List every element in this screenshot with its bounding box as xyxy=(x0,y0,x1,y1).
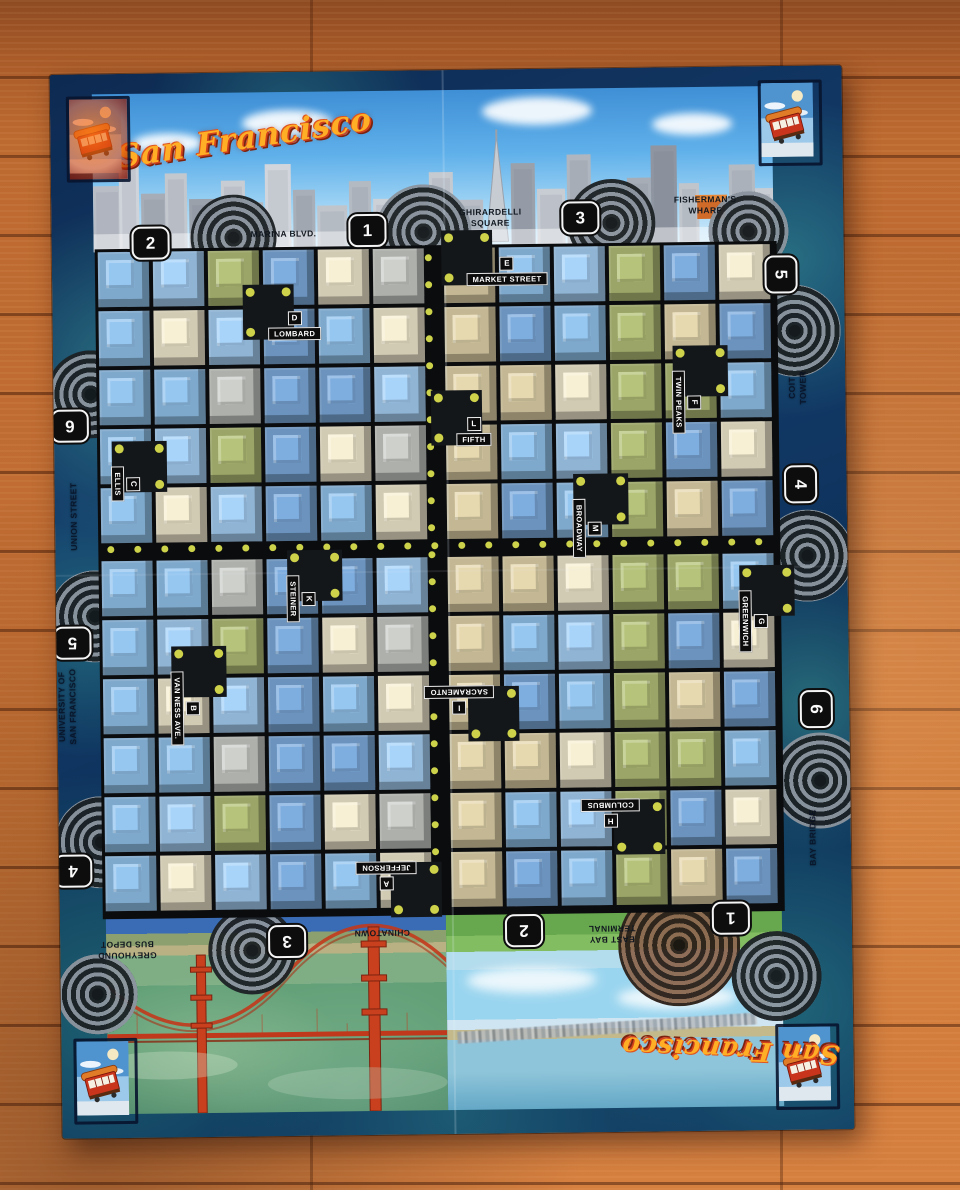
stop-name-label: TWIN PEAKS xyxy=(672,371,686,434)
city-block xyxy=(209,368,261,424)
building-shade xyxy=(211,559,263,615)
building-shade xyxy=(98,252,150,308)
stop-corner-dot xyxy=(174,649,183,658)
building-shade xyxy=(376,484,428,540)
building-shade xyxy=(322,617,374,673)
building-shade xyxy=(506,851,558,907)
stop-line-letter: D xyxy=(287,311,301,325)
stop-line-letter: I xyxy=(452,700,466,714)
city-block xyxy=(448,615,500,671)
building-shade xyxy=(209,368,261,424)
stop-corner-dot xyxy=(470,393,479,402)
stop-line-letter: G xyxy=(754,614,768,628)
destination-east-bay-terminal: EAST BAYTERMINAL xyxy=(588,923,635,945)
building-shade xyxy=(669,672,721,728)
building-shade xyxy=(377,616,429,672)
building-shade xyxy=(269,736,321,792)
city-block xyxy=(269,795,321,851)
building-shade xyxy=(99,370,151,426)
city-block xyxy=(556,423,608,479)
city-block xyxy=(505,733,557,789)
building-shade xyxy=(318,249,370,305)
street-dot xyxy=(425,308,432,315)
corner-cable-car-card xyxy=(66,96,131,183)
building-shade xyxy=(103,679,155,735)
stop-corner-dot xyxy=(434,433,443,442)
building-shade xyxy=(98,311,150,367)
city-block xyxy=(664,245,716,301)
city-block xyxy=(501,424,553,480)
city-block xyxy=(374,366,426,422)
building-shade xyxy=(268,677,320,733)
building-shade xyxy=(613,613,665,669)
stop-line-letter: C xyxy=(126,477,140,491)
street-dot xyxy=(215,545,222,552)
stop-corner-dot xyxy=(434,393,443,402)
building-shade xyxy=(450,792,502,848)
street-stop-van-ness-ave-: BVAN NESS AVE. xyxy=(170,671,200,745)
stop-corner-dot xyxy=(155,444,164,453)
stop-corner-dot xyxy=(115,444,124,453)
street-dot xyxy=(755,538,762,545)
city-block xyxy=(726,848,778,904)
stop-corner-dot xyxy=(246,288,255,297)
city-block xyxy=(264,368,316,424)
city-block xyxy=(558,614,610,670)
street-dot xyxy=(350,543,357,550)
destination-marina-blvd-: MARINA BLVD. xyxy=(251,228,317,239)
building-shade xyxy=(267,618,319,674)
stop-corner-dot xyxy=(471,729,480,738)
city-block xyxy=(554,246,606,302)
station-badge-2: 2 xyxy=(505,914,543,947)
city-block xyxy=(214,795,266,851)
building-shade xyxy=(614,672,666,728)
city-block xyxy=(505,792,557,848)
building-shade xyxy=(722,480,774,536)
city-block xyxy=(376,484,428,540)
stop-name-label: SACRAMENTO xyxy=(424,685,494,699)
building-shade xyxy=(505,792,557,848)
city-block xyxy=(614,672,666,728)
city-block xyxy=(377,616,429,672)
stop-line-letter: H xyxy=(604,814,618,828)
building-shade xyxy=(101,561,153,617)
destination-coit-tower: COITTOWER xyxy=(787,371,809,405)
building-shade xyxy=(373,307,425,363)
street-dot xyxy=(404,542,411,549)
building-shade xyxy=(160,855,212,911)
stop-line-letter: F xyxy=(687,395,701,409)
building-shade xyxy=(265,427,317,483)
building-shade xyxy=(319,367,371,423)
building-shade xyxy=(560,732,612,788)
station-badge-1: 1 xyxy=(348,214,386,247)
cable-car-illustration xyxy=(761,83,814,158)
stop-corner-dot xyxy=(290,553,299,562)
building-shade xyxy=(447,483,499,539)
building-shade xyxy=(555,364,607,420)
city-block xyxy=(502,483,554,539)
street-dot xyxy=(430,659,437,666)
stop-corner-dot xyxy=(215,685,224,694)
destination-university-of-san-francisco: UNIVERSITY OFSAN FRANCISCO xyxy=(56,669,78,745)
city-block xyxy=(320,426,372,482)
stop-name-label: BROADWAY xyxy=(572,499,586,558)
building-shade xyxy=(556,423,608,479)
building-shade xyxy=(616,849,668,905)
city-block xyxy=(615,731,667,787)
building-shade xyxy=(210,427,262,483)
building-shade xyxy=(156,487,208,543)
building-shade xyxy=(324,794,376,850)
building-shade xyxy=(376,557,428,613)
city-block xyxy=(269,736,321,792)
city-block xyxy=(506,851,558,907)
stop-corner-dot xyxy=(507,729,516,738)
street-dot xyxy=(161,545,168,552)
stop-name-label: LOMBARD xyxy=(268,327,321,341)
building-shade xyxy=(214,736,266,792)
city-block xyxy=(159,737,211,793)
destination-ghirardelli-square: GHIRARDELLISQUARE xyxy=(459,206,522,228)
building-shade xyxy=(105,856,157,912)
station-badge-6: 6 xyxy=(800,690,833,728)
building-shade xyxy=(502,483,554,539)
city-block xyxy=(318,249,370,305)
city-block xyxy=(319,367,371,423)
street-dot xyxy=(512,541,519,548)
station-badge-1: 1 xyxy=(712,901,750,934)
building-shade xyxy=(159,737,211,793)
stop-corner-dot xyxy=(716,384,725,393)
city-block xyxy=(211,486,263,542)
city-block xyxy=(322,617,374,673)
street-dot xyxy=(428,551,435,558)
destination-bay-bridge: BAY BRIDGE xyxy=(807,809,818,866)
building-shade xyxy=(612,554,664,610)
city-block xyxy=(98,311,150,367)
city-block xyxy=(379,734,431,790)
building-shade xyxy=(270,854,322,910)
cloud xyxy=(466,966,596,994)
san-francisco-game-board: San Francisco xyxy=(50,65,855,1139)
station-badge-5: 5 xyxy=(53,626,91,659)
station-badge-5: 5 xyxy=(764,255,797,293)
city-block xyxy=(156,487,208,543)
stop-line-letter: A xyxy=(379,876,393,890)
street-dot xyxy=(188,545,195,552)
building-shade xyxy=(558,614,610,670)
building-shade xyxy=(503,615,555,671)
building-shade xyxy=(318,308,370,364)
city-block xyxy=(105,856,157,912)
stop-corner-dot xyxy=(507,689,516,698)
city-block xyxy=(609,245,661,301)
stop-corner-dot xyxy=(617,512,626,521)
building-shade xyxy=(264,368,316,424)
stop-name-label: GREENWICH xyxy=(738,590,752,652)
city-block xyxy=(375,425,427,481)
street-dot xyxy=(425,254,432,261)
cable-car-turnaround-loop xyxy=(731,931,822,1022)
city-block xyxy=(265,427,317,483)
stop-name-label: FIFTH xyxy=(456,433,491,447)
corner-cable-car-card xyxy=(73,1038,138,1125)
city-block xyxy=(160,855,212,911)
building-shade xyxy=(554,305,606,361)
station-badge-3: 3 xyxy=(268,925,306,958)
city-block xyxy=(671,849,723,905)
destination-greyhound-bus-depot: GREYHOUNDBUS DEPOT xyxy=(98,939,157,961)
stop-line-letter: M xyxy=(588,521,602,535)
holographic-tint xyxy=(69,99,128,180)
building-shade xyxy=(610,363,662,419)
cloud xyxy=(482,96,592,125)
stop-corner-dot xyxy=(246,328,255,337)
city-block xyxy=(719,244,771,300)
city-block xyxy=(101,561,153,617)
stop-name-label: MARKET STREET xyxy=(467,272,548,286)
city-block xyxy=(611,422,663,478)
city-block xyxy=(211,559,263,615)
building-shade xyxy=(670,731,722,787)
building-shade xyxy=(448,615,500,671)
building-shade xyxy=(726,848,778,904)
city-block xyxy=(722,480,774,536)
city-block xyxy=(667,554,719,610)
city-block xyxy=(270,854,322,910)
stop-corner-dot xyxy=(653,802,662,811)
stop-corner-dot xyxy=(430,905,439,914)
street-stop-market-street: EMARKET STREET xyxy=(466,256,547,286)
building-shade xyxy=(505,733,557,789)
building-shade xyxy=(321,485,373,541)
street-dot xyxy=(485,542,492,549)
building-shade xyxy=(501,424,553,480)
city-block xyxy=(609,304,661,360)
city-block xyxy=(444,306,496,362)
station-badge-4: 4 xyxy=(54,854,92,887)
city-block xyxy=(670,731,722,787)
street-dot xyxy=(107,546,114,553)
city-block xyxy=(503,615,555,671)
stop-corner-dot xyxy=(444,233,453,242)
building-shade xyxy=(724,671,776,727)
street-dot xyxy=(429,632,436,639)
city-block xyxy=(610,363,662,419)
building-shade xyxy=(379,793,431,849)
stop-name-label: VAN NESS AVE. xyxy=(170,671,184,745)
building-shade xyxy=(320,426,372,482)
city-block xyxy=(99,370,151,426)
street-dot xyxy=(425,281,432,288)
city-block xyxy=(724,671,776,727)
city-block xyxy=(154,369,206,425)
building-shade xyxy=(609,245,661,301)
stop-line-letter: B xyxy=(186,701,200,715)
city-block xyxy=(321,485,373,541)
stop-name-label: ELLIS xyxy=(111,466,125,501)
street-stop-sacramento: ISACRAMENTO xyxy=(424,685,494,715)
stop-corner-dot xyxy=(617,843,626,852)
city-block xyxy=(500,365,552,421)
street-dot xyxy=(728,539,735,546)
street-dot xyxy=(701,539,708,546)
building-shade xyxy=(373,248,425,304)
building-shade xyxy=(104,797,156,853)
city-block xyxy=(450,733,502,789)
street-dot xyxy=(242,544,249,551)
building-shade xyxy=(721,421,773,477)
street-dot xyxy=(269,544,276,551)
stop-corner-dot xyxy=(214,649,223,658)
city-block xyxy=(613,613,665,669)
city-block xyxy=(215,854,267,910)
stop-corner-dot xyxy=(330,589,339,598)
city-block xyxy=(725,730,777,786)
street-dot xyxy=(431,542,438,549)
city-block xyxy=(725,789,777,845)
street-stop-greenwich: GGREENWICH xyxy=(738,590,768,653)
city-block xyxy=(721,421,773,477)
stop-name-label: COLUMBUS xyxy=(581,798,640,812)
street-stop-broadway: MBROADWAY xyxy=(572,499,602,558)
building-shade xyxy=(664,245,716,301)
building-shade xyxy=(211,486,263,542)
building-shade xyxy=(502,556,554,612)
street-dot xyxy=(620,540,627,547)
stop-line-letter: K xyxy=(301,592,315,606)
destination-fisherman-s-wharf: FISHERMAN'SWHARF xyxy=(674,194,737,216)
station-badge-3: 3 xyxy=(561,201,599,234)
city-block xyxy=(378,675,430,731)
street-stop-steiner: KSTEINER xyxy=(286,575,316,623)
building-shade xyxy=(215,854,267,910)
corner-cable-car-card xyxy=(758,79,823,166)
stop-line-letter: L xyxy=(467,417,481,431)
stop-corner-dot xyxy=(576,477,585,486)
building-shade xyxy=(670,790,722,846)
street-dot xyxy=(431,794,438,801)
city-block xyxy=(612,554,664,610)
city-block xyxy=(502,556,554,612)
city-block xyxy=(560,732,612,788)
building-shade xyxy=(214,795,266,851)
building-shade xyxy=(447,556,499,612)
building-shade xyxy=(154,369,206,425)
building-shade xyxy=(269,795,321,851)
building-shade xyxy=(667,481,719,537)
city-block xyxy=(616,849,668,905)
building-shade xyxy=(451,851,503,907)
building-shade xyxy=(557,555,609,611)
building-shade xyxy=(561,850,613,906)
building-shade xyxy=(668,613,720,669)
stop-corner-dot xyxy=(782,568,791,577)
stop-corner-dot xyxy=(653,842,662,851)
street-dot xyxy=(428,497,435,504)
city-block xyxy=(667,481,719,537)
street-dot xyxy=(539,541,546,548)
street-dot xyxy=(432,821,439,828)
city-block xyxy=(266,486,318,542)
stop-name-label: JEFFERSON xyxy=(356,861,417,875)
city-block xyxy=(267,618,319,674)
building-shade xyxy=(667,554,719,610)
destination-union-street: UNION STREET xyxy=(68,483,79,551)
city-block xyxy=(103,679,155,735)
street-dot xyxy=(426,335,433,342)
city-block xyxy=(557,555,609,611)
stop-corner-dot xyxy=(616,476,625,485)
city-block xyxy=(210,427,262,483)
street-stop-twin-peaks: FTWIN PEAKS xyxy=(672,370,702,433)
street-dot xyxy=(427,470,434,477)
building-shade xyxy=(609,304,661,360)
city-block xyxy=(376,557,428,613)
building-shade xyxy=(671,849,723,905)
city-block xyxy=(268,677,320,733)
building-shade xyxy=(374,366,426,422)
city-block xyxy=(104,738,156,794)
city-block xyxy=(104,797,156,853)
building-shade xyxy=(323,676,375,732)
street-stop-fifth: LFIFTH xyxy=(456,417,492,447)
street-stop-lombard: DLOMBARD xyxy=(268,311,321,341)
stop-corner-dot xyxy=(480,233,489,242)
building-shade xyxy=(725,789,777,845)
stop-corner-dot xyxy=(430,865,439,874)
building-shade xyxy=(102,620,154,676)
destination-chinatown: CHINATOWN xyxy=(354,927,410,938)
city-block xyxy=(670,790,722,846)
stop-line-letter: E xyxy=(500,257,514,271)
building-shade xyxy=(159,796,211,852)
city-block xyxy=(499,306,551,362)
city-block xyxy=(561,850,613,906)
stop-name-label: STEINER xyxy=(286,575,300,622)
street-dot xyxy=(647,540,654,547)
street-stop-columbus: HCOLUMBUS xyxy=(581,798,640,828)
building-shade xyxy=(559,673,611,729)
stop-corner-dot xyxy=(716,348,725,357)
building-shade xyxy=(104,738,156,794)
city-block xyxy=(98,252,150,308)
city-block xyxy=(373,307,425,363)
building-shade xyxy=(611,422,663,478)
city-block xyxy=(669,672,721,728)
street-stop-jefferson: AJEFFERSON xyxy=(356,861,417,891)
street-dot xyxy=(429,605,436,612)
city-block xyxy=(668,613,720,669)
building-shade xyxy=(324,735,376,791)
station-badge-4: 4 xyxy=(784,465,817,503)
city-block xyxy=(379,793,431,849)
building-shade xyxy=(500,365,552,421)
city-block xyxy=(159,796,211,852)
city-block xyxy=(447,556,499,612)
city-block xyxy=(102,620,154,676)
building-shade xyxy=(156,560,208,616)
cable-car-illustration xyxy=(76,1041,129,1116)
building-shade xyxy=(379,734,431,790)
city-block xyxy=(447,483,499,539)
building-shade xyxy=(615,731,667,787)
street-stop-ellis: CELLIS xyxy=(111,466,141,502)
stop-corner-dot xyxy=(445,273,454,282)
city-block xyxy=(451,851,503,907)
